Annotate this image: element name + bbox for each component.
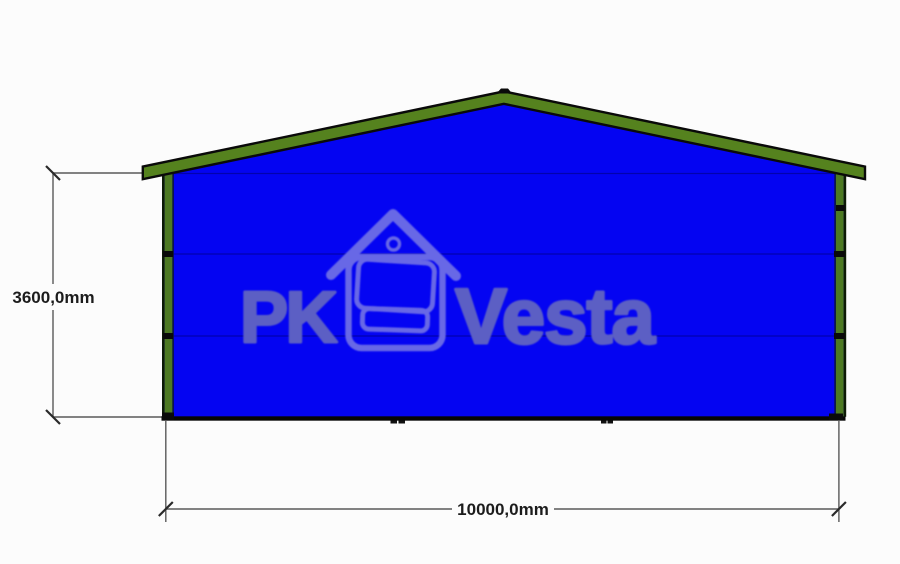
svg-text:10000,0mm: 10000,0mm — [457, 500, 549, 519]
svg-text:Vesta: Vesta — [455, 272, 655, 360]
svg-text:3600,0mm: 3600,0mm — [12, 288, 94, 307]
svg-text:PK: PK — [240, 278, 338, 358]
